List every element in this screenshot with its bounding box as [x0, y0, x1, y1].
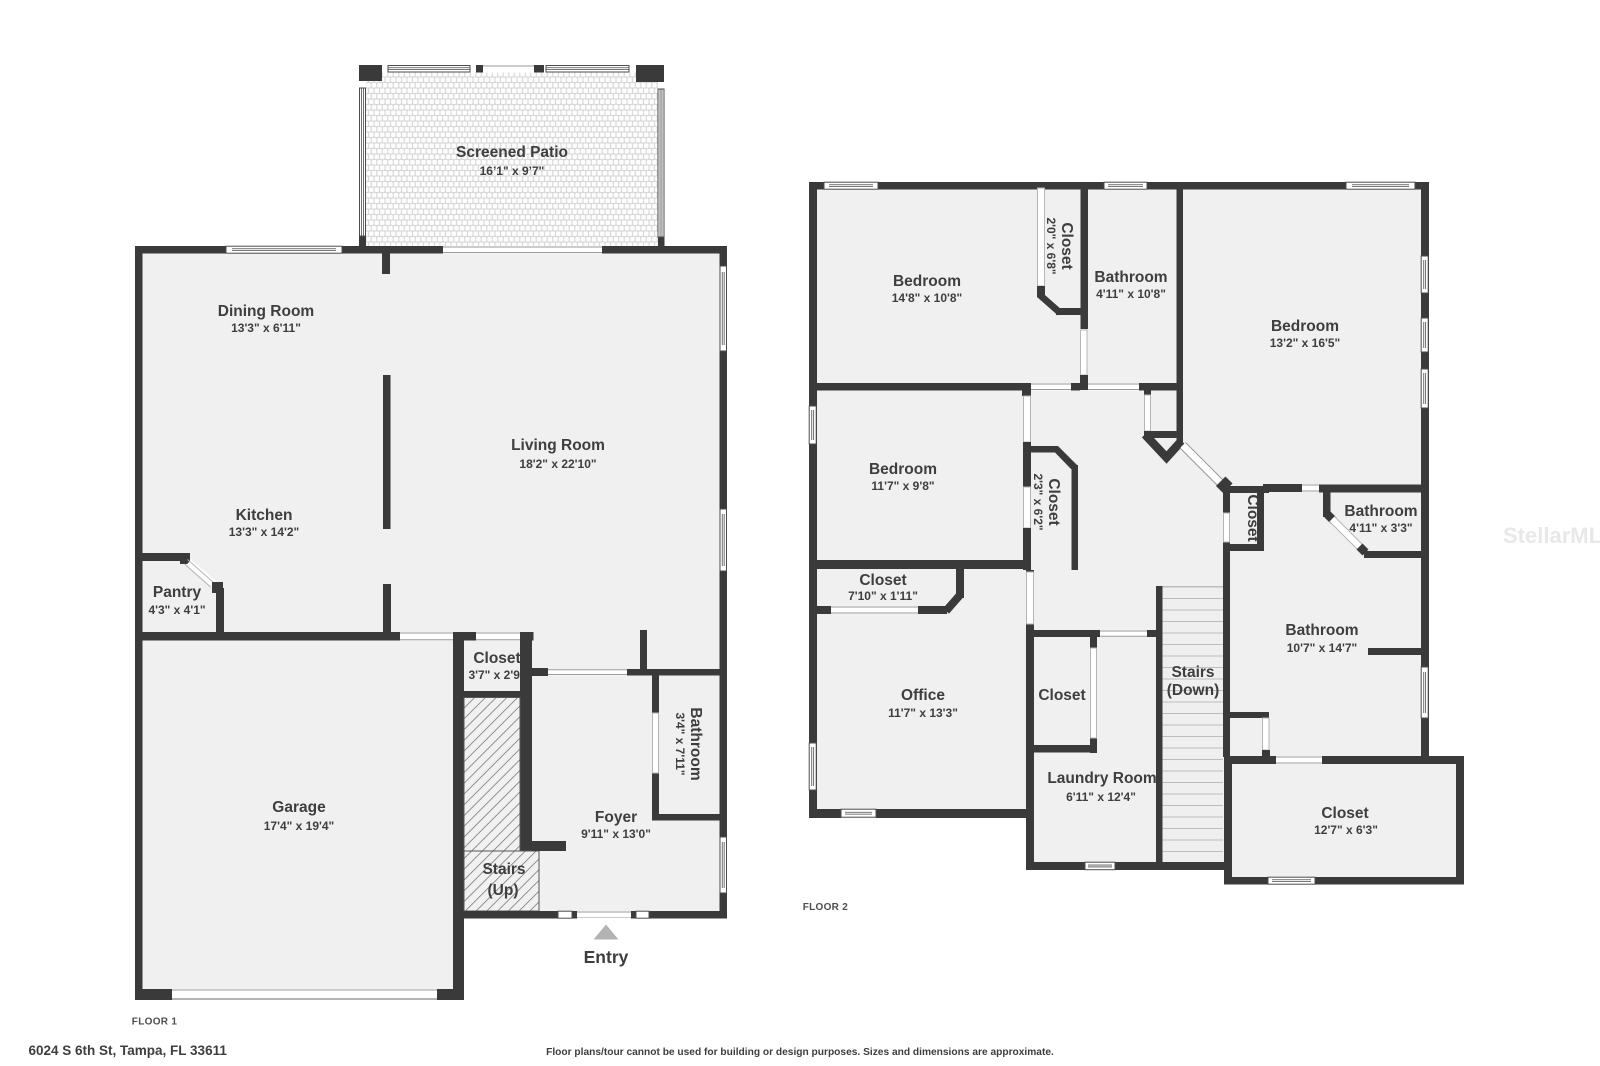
svg-text:4'11" x 3'3": 4'11" x 3'3" [1349, 521, 1412, 535]
svg-text:10'7" x 14'7": 10'7" x 14'7" [1287, 641, 1357, 655]
svg-text:2'3" x 6'2": 2'3" x 6'2" [1031, 473, 1045, 530]
svg-text:12'7" x 6'3": 12'7" x 6'3" [1314, 823, 1378, 837]
svg-text:Bathroom: Bathroom [1285, 622, 1358, 639]
svg-text:Garage: Garage [272, 799, 326, 816]
svg-text:Bathroom: Bathroom [687, 707, 704, 780]
svg-text:Floor plans/tour cannot be use: Floor plans/tour cannot be used for buil… [546, 1047, 1054, 1058]
svg-text:Closet: Closet [1244, 494, 1261, 541]
svg-text:StellarMLS: StellarMLS [1503, 523, 1600, 548]
svg-text:Bathroom: Bathroom [1094, 269, 1167, 286]
svg-text:Closet: Closet [473, 650, 520, 667]
svg-text:3'7" x 2'9": 3'7" x 2'9" [468, 668, 525, 682]
svg-text:Kitchen: Kitchen [236, 507, 293, 524]
svg-text:Entry: Entry [584, 947, 629, 967]
svg-text:Screened Patio: Screened Patio [456, 144, 568, 161]
svg-text:(Up): (Up) [488, 882, 519, 899]
svg-text:Bedroom: Bedroom [1271, 318, 1339, 335]
svg-text:4'3" x 4'1": 4'3" x 4'1" [148, 603, 205, 617]
svg-text:(Down): (Down) [1167, 682, 1220, 699]
svg-text:13'2" x 16'5": 13'2" x 16'5" [1270, 336, 1340, 350]
svg-text:14'8" x 10'8": 14'8" x 10'8" [892, 291, 962, 305]
svg-text:18'2" x 22'10": 18'2" x 22'10" [519, 457, 596, 471]
svg-text:Closet: Closet [1058, 222, 1075, 269]
svg-text:3'4" x 7'11": 3'4" x 7'11" [673, 712, 687, 775]
svg-text:Dining Room: Dining Room [218, 303, 314, 320]
svg-text:16’1" x 9’7": 16’1" x 9’7" [480, 164, 545, 178]
svg-text:Closet: Closet [1038, 687, 1085, 704]
svg-text:Bedroom: Bedroom [869, 461, 937, 478]
svg-text:11'7" x 13'3": 11'7" x 13'3" [888, 706, 958, 720]
svg-text:Closet: Closet [859, 572, 906, 589]
svg-text:6024 S 6th St, Tampa, FL 33611: 6024 S 6th St, Tampa, FL 33611 [29, 1043, 228, 1058]
svg-text:17'4" x 19'4": 17'4" x 19'4" [264, 819, 334, 833]
svg-text:13'3" x 14'2": 13'3" x 14'2" [229, 525, 299, 539]
svg-text:13'3" x 6'11": 13'3" x 6'11" [231, 321, 301, 335]
svg-text:Bedroom: Bedroom [893, 273, 961, 290]
svg-text:Office: Office [901, 687, 945, 704]
svg-text:7'10" x 1'11": 7'10" x 1'11" [848, 589, 918, 603]
svg-text:Closet: Closet [1321, 805, 1368, 822]
svg-text:2'0" x 6'8": 2'0" x 6'8" [1044, 217, 1058, 274]
svg-text:Stairs: Stairs [482, 861, 525, 878]
svg-text:Stairs: Stairs [1171, 664, 1214, 681]
svg-text:Laundry Room: Laundry Room [1047, 770, 1156, 787]
svg-text:Bathroom: Bathroom [1344, 503, 1417, 520]
svg-text:FLOOR 2: FLOOR 2 [803, 902, 849, 913]
svg-text:9'11" x 13'0": 9'11" x 13'0" [581, 827, 651, 841]
svg-text:11'7" x 9'8": 11'7" x 9'8" [871, 479, 934, 493]
svg-text:Living Room: Living Room [511, 437, 605, 454]
svg-text:FLOOR 1: FLOOR 1 [132, 1017, 178, 1028]
svg-text:4'11" x 10'8": 4'11" x 10'8" [1096, 287, 1166, 301]
svg-text:Foyer: Foyer [595, 809, 637, 826]
svg-text:Pantry: Pantry [153, 584, 202, 601]
svg-text:6'11" x 12'4": 6'11" x 12'4" [1066, 790, 1136, 804]
svg-text:Closet: Closet [1045, 478, 1062, 525]
